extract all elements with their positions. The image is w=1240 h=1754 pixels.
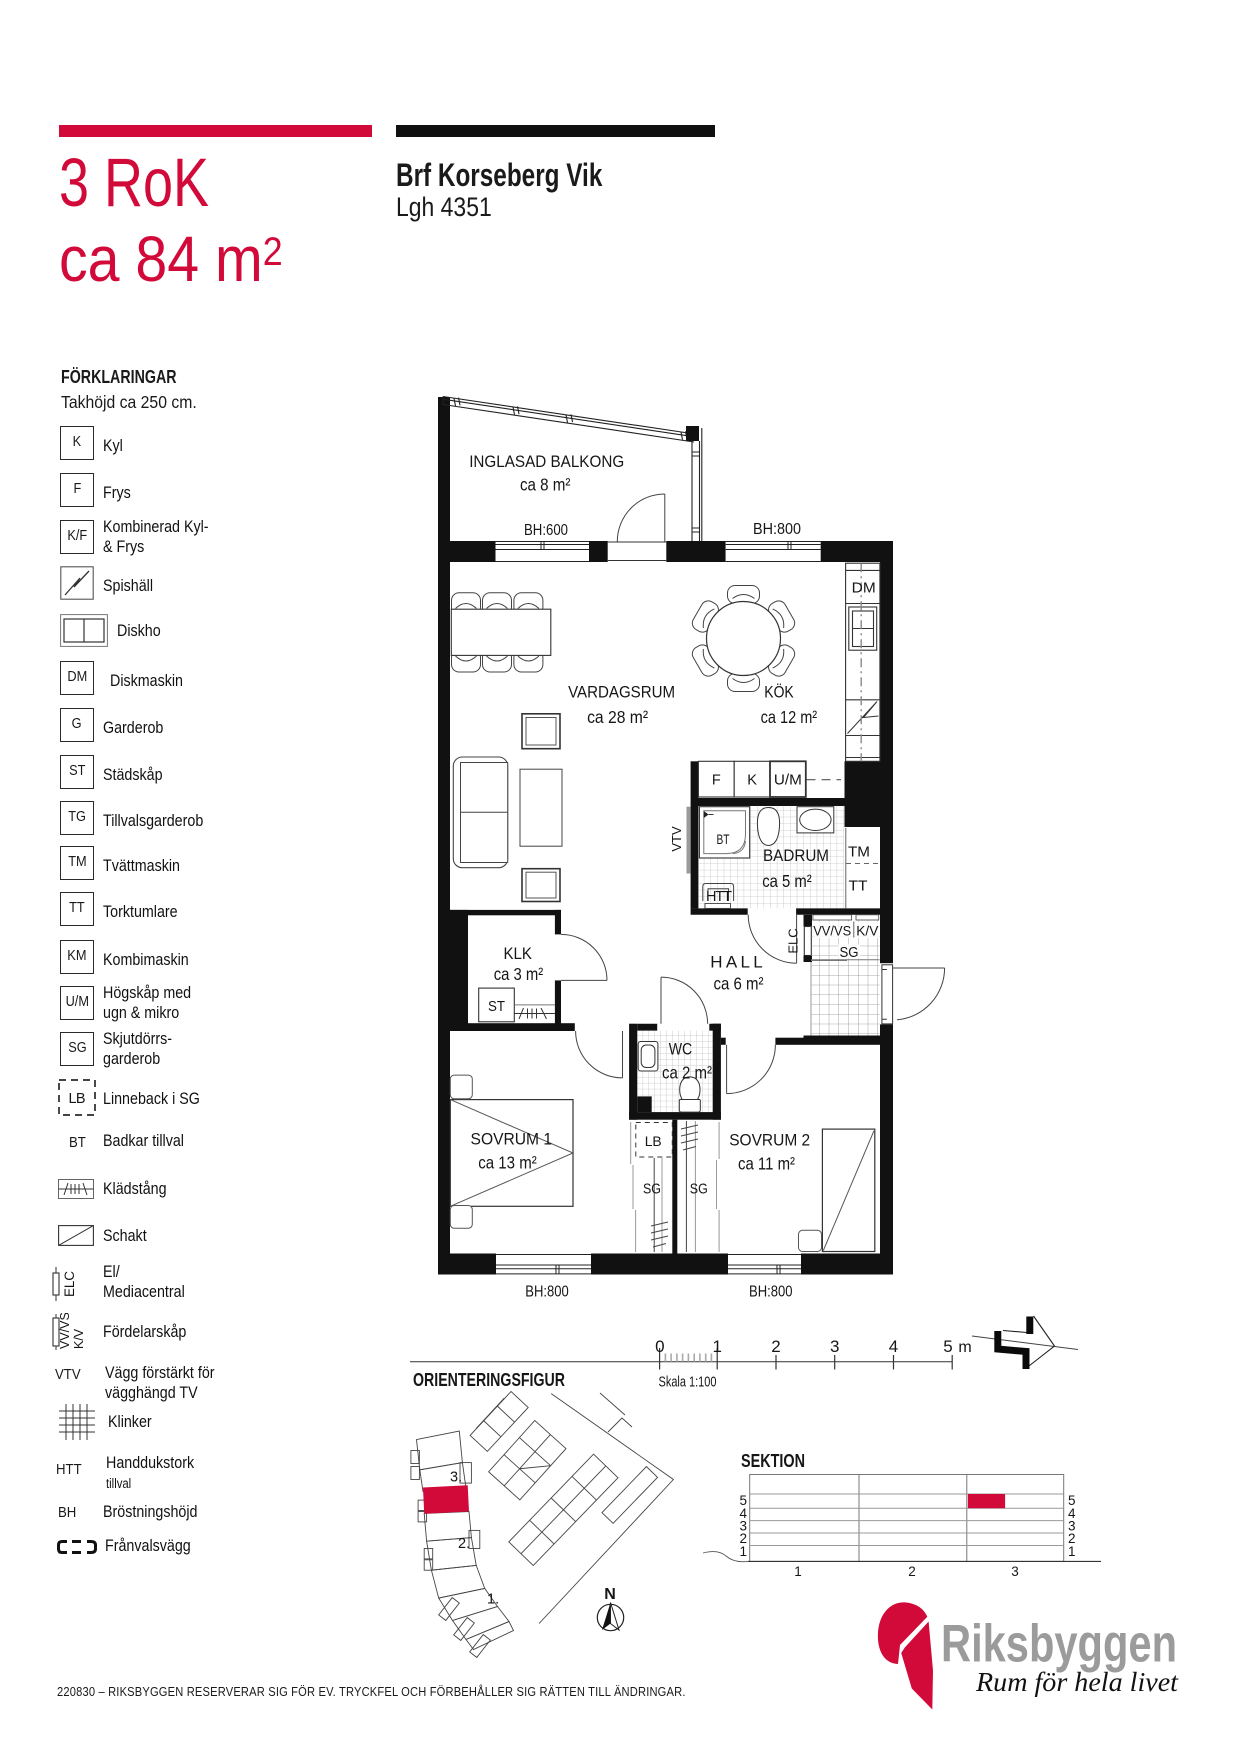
svg-text:m: m: [958, 1339, 971, 1356]
svg-text:BADRUM: BADRUM: [763, 846, 829, 865]
svg-text:TM: TM: [848, 845, 870, 861]
svg-text:2.: 2.: [458, 1536, 470, 1552]
svg-text:0: 0: [655, 1337, 664, 1356]
svg-text:SG: SG: [643, 1182, 661, 1198]
svg-text:ca 11 m²: ca 11 m²: [738, 1153, 795, 1173]
svg-text:ca 28 m²: ca 28 m²: [587, 707, 648, 727]
svg-text:ca 8 m²: ca 8 m²: [520, 475, 571, 495]
svg-text:3.: 3.: [450, 1470, 462, 1486]
svg-text:ca 6 m²: ca 6 m²: [714, 974, 764, 994]
svg-text:KLK: KLK: [503, 944, 532, 963]
svg-text:ORIENTERINGSFIGUR: ORIENTERINGSFIGUR: [413, 1369, 565, 1390]
svg-text:ca 12 m²: ca 12 m²: [761, 707, 818, 727]
svg-text:KÖK: KÖK: [764, 683, 794, 702]
svg-text:SG: SG: [690, 1182, 708, 1198]
svg-text:1: 1: [794, 1564, 802, 1579]
svg-text:BH:800: BH:800: [749, 1284, 793, 1301]
svg-text:VARDAGSRUM: VARDAGSRUM: [568, 683, 675, 702]
svg-text:ST: ST: [488, 999, 505, 1015]
svg-text:HTT: HTT: [706, 889, 732, 905]
svg-text:3: 3: [1011, 1564, 1019, 1579]
svg-text:DM: DM: [852, 580, 876, 597]
svg-text:Skala 1:100: Skala 1:100: [659, 1374, 717, 1391]
svg-text:VV/VS: VV/VS: [813, 924, 851, 939]
svg-text:Riksbyggen: Riksbyggen: [941, 1615, 1177, 1674]
svg-text:2: 2: [771, 1337, 780, 1356]
svg-text:ca 2 m²: ca 2 m²: [662, 1062, 712, 1082]
svg-text:SOVRUM 2: SOVRUM 2: [729, 1130, 810, 1149]
svg-text:1: 1: [739, 1544, 747, 1559]
svg-text:5: 5: [943, 1337, 952, 1356]
svg-text:2: 2: [908, 1564, 916, 1579]
svg-text:K: K: [747, 773, 757, 789]
svg-text:3: 3: [830, 1337, 839, 1356]
svg-text:VTV: VTV: [669, 826, 684, 852]
svg-text:F: F: [712, 773, 721, 789]
svg-text:SEKTION: SEKTION: [741, 1450, 805, 1471]
svg-text:BH:600: BH:600: [524, 522, 568, 539]
svg-text:LB: LB: [645, 1133, 662, 1149]
svg-text:K/V: K/V: [856, 924, 878, 939]
svg-text:ca 13 m²: ca 13 m²: [478, 1153, 537, 1173]
svg-text:ca 3 m²: ca 3 m²: [494, 964, 544, 984]
svg-text:WC: WC: [669, 1040, 693, 1059]
svg-text:ca 5 m²: ca 5 m²: [762, 871, 812, 891]
svg-text:BH:800: BH:800: [525, 1284, 569, 1301]
svg-text:N: N: [604, 1586, 616, 1603]
svg-text:SOVRUM 1: SOVRUM 1: [471, 1130, 553, 1149]
svg-text:1: 1: [1068, 1544, 1076, 1559]
svg-text:U/M: U/M: [774, 773, 802, 789]
svg-text:Rum för hela livet: Rum för hela livet: [975, 1667, 1180, 1697]
svg-text:1: 1: [712, 1337, 721, 1356]
svg-text:4: 4: [889, 1337, 898, 1356]
svg-text:1.: 1.: [487, 1592, 499, 1608]
svg-text:ELC: ELC: [786, 928, 801, 953]
svg-text:HALL: HALL: [710, 953, 763, 972]
svg-text:INGLASAD BALKONG: INGLASAD BALKONG: [469, 452, 624, 471]
svg-text:TT: TT: [849, 879, 868, 895]
svg-text:BH:800: BH:800: [753, 521, 801, 538]
svg-text:BT: BT: [717, 832, 730, 847]
svg-text:SG: SG: [840, 945, 859, 961]
